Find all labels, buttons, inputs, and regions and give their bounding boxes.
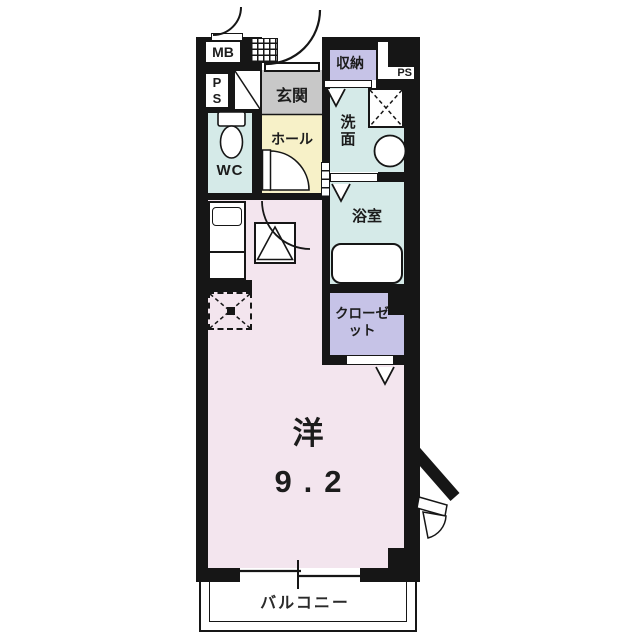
stove <box>254 222 296 264</box>
mb-door-arc <box>213 7 241 35</box>
storage-label: 収納 <box>324 54 376 72</box>
balcony-label: バルコニー <box>230 590 380 612</box>
wall-wc-hall <box>252 113 262 200</box>
storage-text: 収納 <box>336 53 364 73</box>
wc-text: WC <box>217 162 244 179</box>
room-type-label: 洋 <box>278 411 338 449</box>
kitchen-counter-divider <box>208 251 246 253</box>
closet-text: クローゼット <box>331 306 393 340</box>
hall-floor <box>262 115 322 193</box>
closet-label: クローゼット <box>331 304 393 342</box>
bathroom-text: 浴室 <box>352 205 382 226</box>
pipe-space-right-label: PS <box>397 67 412 79</box>
genkan-label: 玄関 <box>262 84 322 104</box>
pipe-space-right: PS <box>378 67 414 79</box>
mb-door-leaf <box>211 33 243 41</box>
storage-door <box>324 80 372 88</box>
bathroom-label: 浴室 <box>330 205 404 225</box>
balcony-text: バルコニー <box>260 589 350 613</box>
washroom-sliding-door <box>321 162 330 198</box>
wc-room-floor <box>208 113 252 193</box>
meter-box-label: MB <box>212 44 234 60</box>
pipe-space-left: PS <box>204 72 230 109</box>
bathroom-door <box>330 173 378 182</box>
exterior-door-arc <box>423 512 446 538</box>
bathtub <box>331 243 403 284</box>
hall-label: ホール <box>262 130 322 148</box>
washing-machine-pan <box>368 88 404 128</box>
wall-washroom-bath <box>378 172 404 182</box>
refrigerator-space <box>208 292 252 330</box>
exterior-door-leaf <box>417 497 447 516</box>
wall-bath-closet <box>322 284 404 293</box>
room-size-text: 9.2 <box>274 464 353 500</box>
room-size-label: 9.2 <box>253 462 363 502</box>
wall-corner-step <box>388 548 420 582</box>
washroom-label: 洗面 <box>336 104 358 158</box>
genkan-text: 玄関 <box>276 82 308 106</box>
kitchen-sink <box>212 207 242 226</box>
closet-door <box>346 355 394 365</box>
wall-room-top <box>196 193 330 200</box>
meter-box: MB <box>204 40 242 64</box>
wall-left <box>196 37 208 582</box>
washroom-text: 洗面 <box>337 114 358 148</box>
wall-right <box>404 37 420 582</box>
wall-kitchen <box>196 280 252 292</box>
entrance-door-leaf <box>264 62 320 72</box>
hall-text: ホール <box>271 129 313 149</box>
wall-bottom-left <box>196 568 240 582</box>
entrance-grate <box>250 38 278 63</box>
floorplan-canvas: MB PS PS 玄関 ホール WC 収納 洗面 浴室 クローゼット 洋 9.2… <box>0 0 640 640</box>
wc-label: WC <box>208 161 252 179</box>
shoe-cabinet <box>234 70 261 110</box>
room-type-text: 洋 <box>293 408 324 453</box>
pipe-space-left-label: PS <box>210 75 225 107</box>
